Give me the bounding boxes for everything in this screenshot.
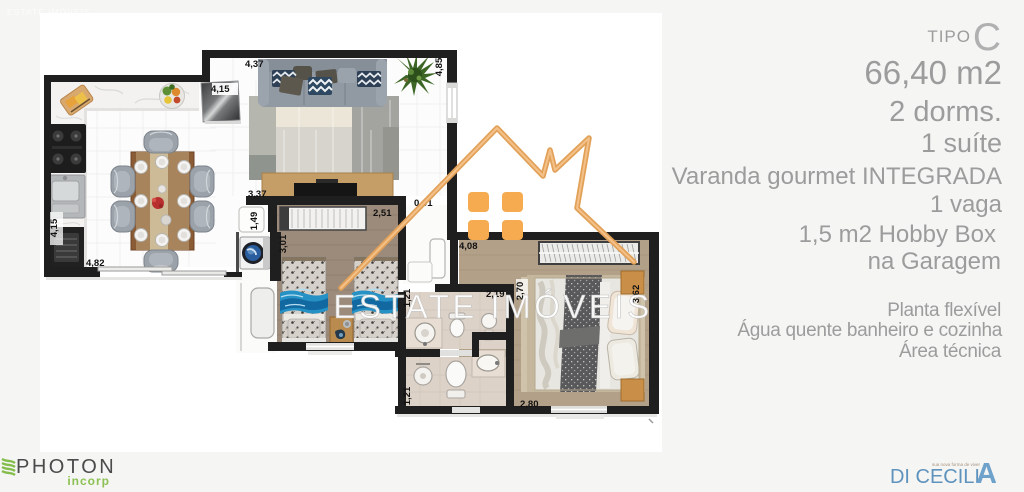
svg-text:1,5 m2 Hobby Box: 1,5 m2 Hobby Box <box>799 221 996 248</box>
svg-text:Área técnica: Área técnica <box>899 341 1002 362</box>
svg-text:4,37: 4,37 <box>245 59 264 70</box>
svg-text:1 vaga: 1 vaga <box>930 191 1003 218</box>
svg-text:2 dorms.: 2 dorms. <box>889 96 1002 128</box>
svg-text:ESTATE IMÓVEIS: ESTATE IMÓVEIS <box>333 288 652 325</box>
svg-text:1 suíte: 1 suíte <box>921 128 1002 158</box>
svg-text:ESTATE IMÓVEIS: ESTATE IMÓVEIS <box>7 7 91 17</box>
svg-text:1,21: 1,21 <box>402 386 413 405</box>
svg-text:4,15: 4,15 <box>211 84 230 95</box>
svg-text:4,15: 4,15 <box>49 218 60 237</box>
svg-text:DI CECILI: DI CECILI <box>890 466 980 488</box>
svg-text:3,37: 3,37 <box>248 189 267 200</box>
svg-text:4,82: 4,82 <box>86 258 105 269</box>
svg-text:incorp: incorp <box>67 474 110 488</box>
svg-text:Varanda gourmet INTEGRADA: Varanda gourmet INTEGRADA <box>672 163 1002 190</box>
svg-text:C: C <box>973 16 1001 59</box>
svg-text:66,40 m2: 66,40 m2 <box>864 54 1002 91</box>
svg-text:A: A <box>976 458 997 490</box>
svg-text:Água quente banheiro e cozinha: Água quente banheiro e cozinha <box>737 320 1002 341</box>
svg-text:3,01: 3,01 <box>278 234 289 253</box>
svg-text:4,85: 4,85 <box>434 57 445 76</box>
svg-text:1,49: 1,49 <box>249 212 260 231</box>
svg-text:4,08: 4,08 <box>459 241 478 252</box>
svg-text:na Garagem: na Garagem <box>868 248 1001 275</box>
svg-text:Planta flexível: Planta flexível <box>887 300 1001 321</box>
svg-text:2,80: 2,80 <box>520 399 539 410</box>
svg-text:2,51: 2,51 <box>373 208 392 219</box>
svg-text:TIPO: TIPO <box>927 27 971 46</box>
